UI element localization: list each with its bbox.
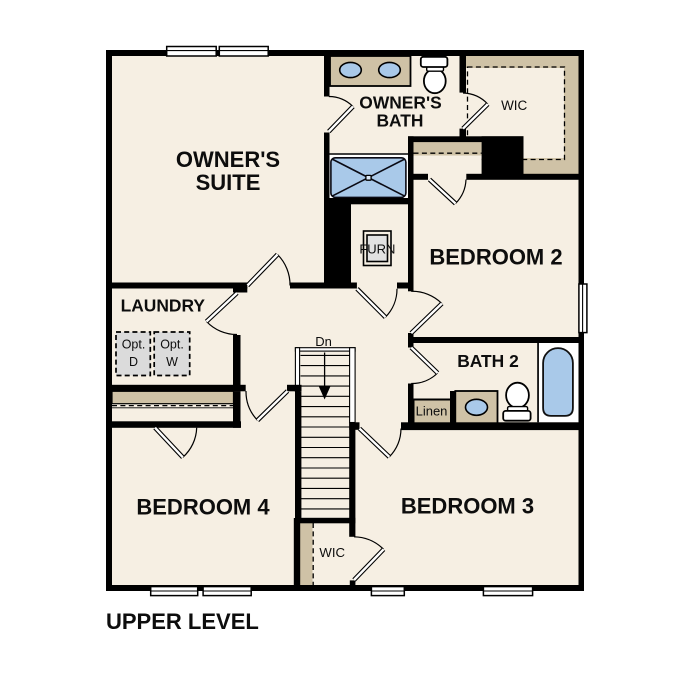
svg-text:SUITE: SUITE xyxy=(196,170,261,195)
svg-text:Dn: Dn xyxy=(315,334,332,349)
svg-text:BEDROOM 3: BEDROOM 3 xyxy=(401,494,534,519)
svg-text:OWNER'S: OWNER'S xyxy=(176,147,280,172)
svg-text:W: W xyxy=(166,355,178,369)
svg-text:FURN: FURN xyxy=(359,242,395,257)
svg-text:LAUNDRY: LAUNDRY xyxy=(121,296,206,316)
svg-text:BEDROOM 4: BEDROOM 4 xyxy=(136,495,270,520)
svg-text:D: D xyxy=(129,355,138,369)
svg-text:Linen: Linen xyxy=(416,404,448,419)
svg-text:Opt.: Opt. xyxy=(160,338,184,352)
svg-text:OWNER'S: OWNER'S xyxy=(359,93,441,113)
svg-text:BEDROOM 2: BEDROOM 2 xyxy=(429,245,562,270)
svg-text:BATH 2: BATH 2 xyxy=(457,351,519,371)
svg-text:UPPER LEVEL: UPPER LEVEL xyxy=(106,609,259,634)
svg-text:Opt.: Opt. xyxy=(122,338,146,352)
svg-text:WIC: WIC xyxy=(319,545,345,560)
svg-text:BATH: BATH xyxy=(376,111,423,131)
svg-text:WIC: WIC xyxy=(501,98,527,113)
